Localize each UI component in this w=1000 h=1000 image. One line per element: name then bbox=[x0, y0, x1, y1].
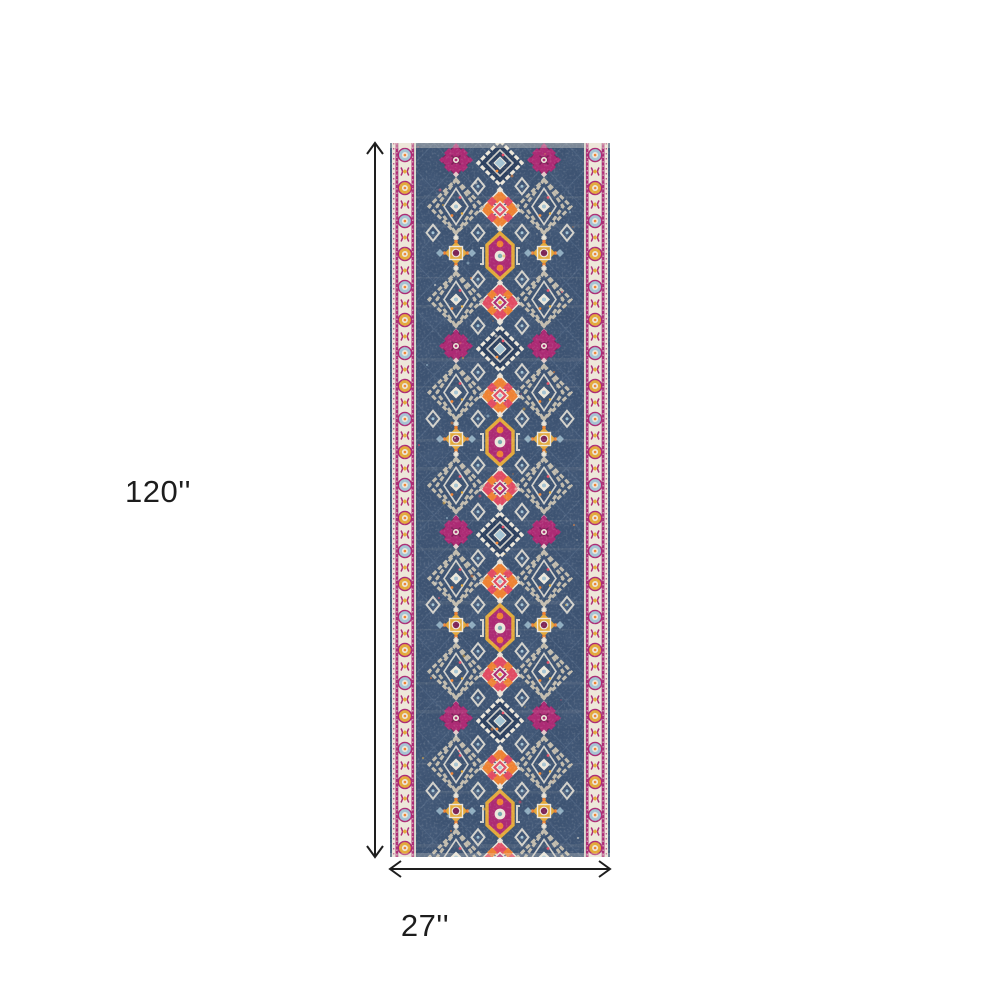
dimension-diagram: 120'' 27'' bbox=[0, 0, 1000, 1000]
vertical-dimension-arrow bbox=[364, 140, 386, 860]
length-label: 120'' bbox=[108, 476, 208, 507]
horizontal-dimension-arrow bbox=[387, 857, 613, 881]
width-label: 27'' bbox=[391, 910, 459, 941]
rug-image bbox=[390, 143, 610, 857]
